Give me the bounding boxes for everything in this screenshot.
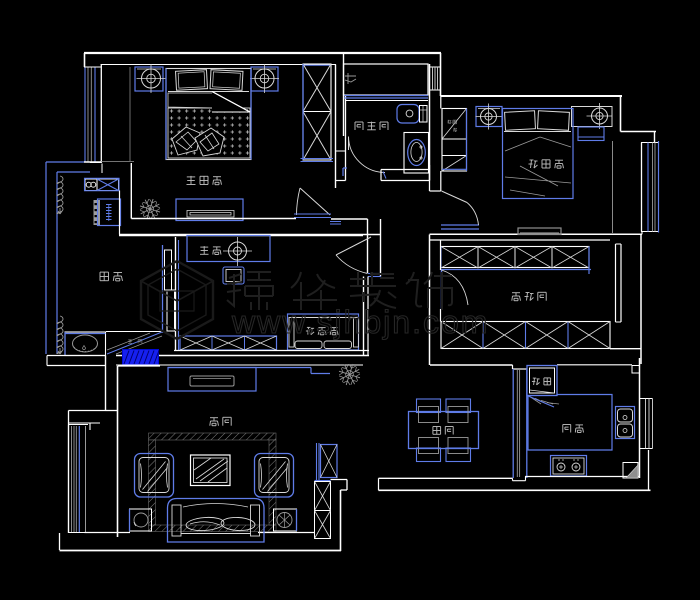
svg-text:www.sjhbjn.com: www.sjhbjn.com [231, 304, 489, 340]
